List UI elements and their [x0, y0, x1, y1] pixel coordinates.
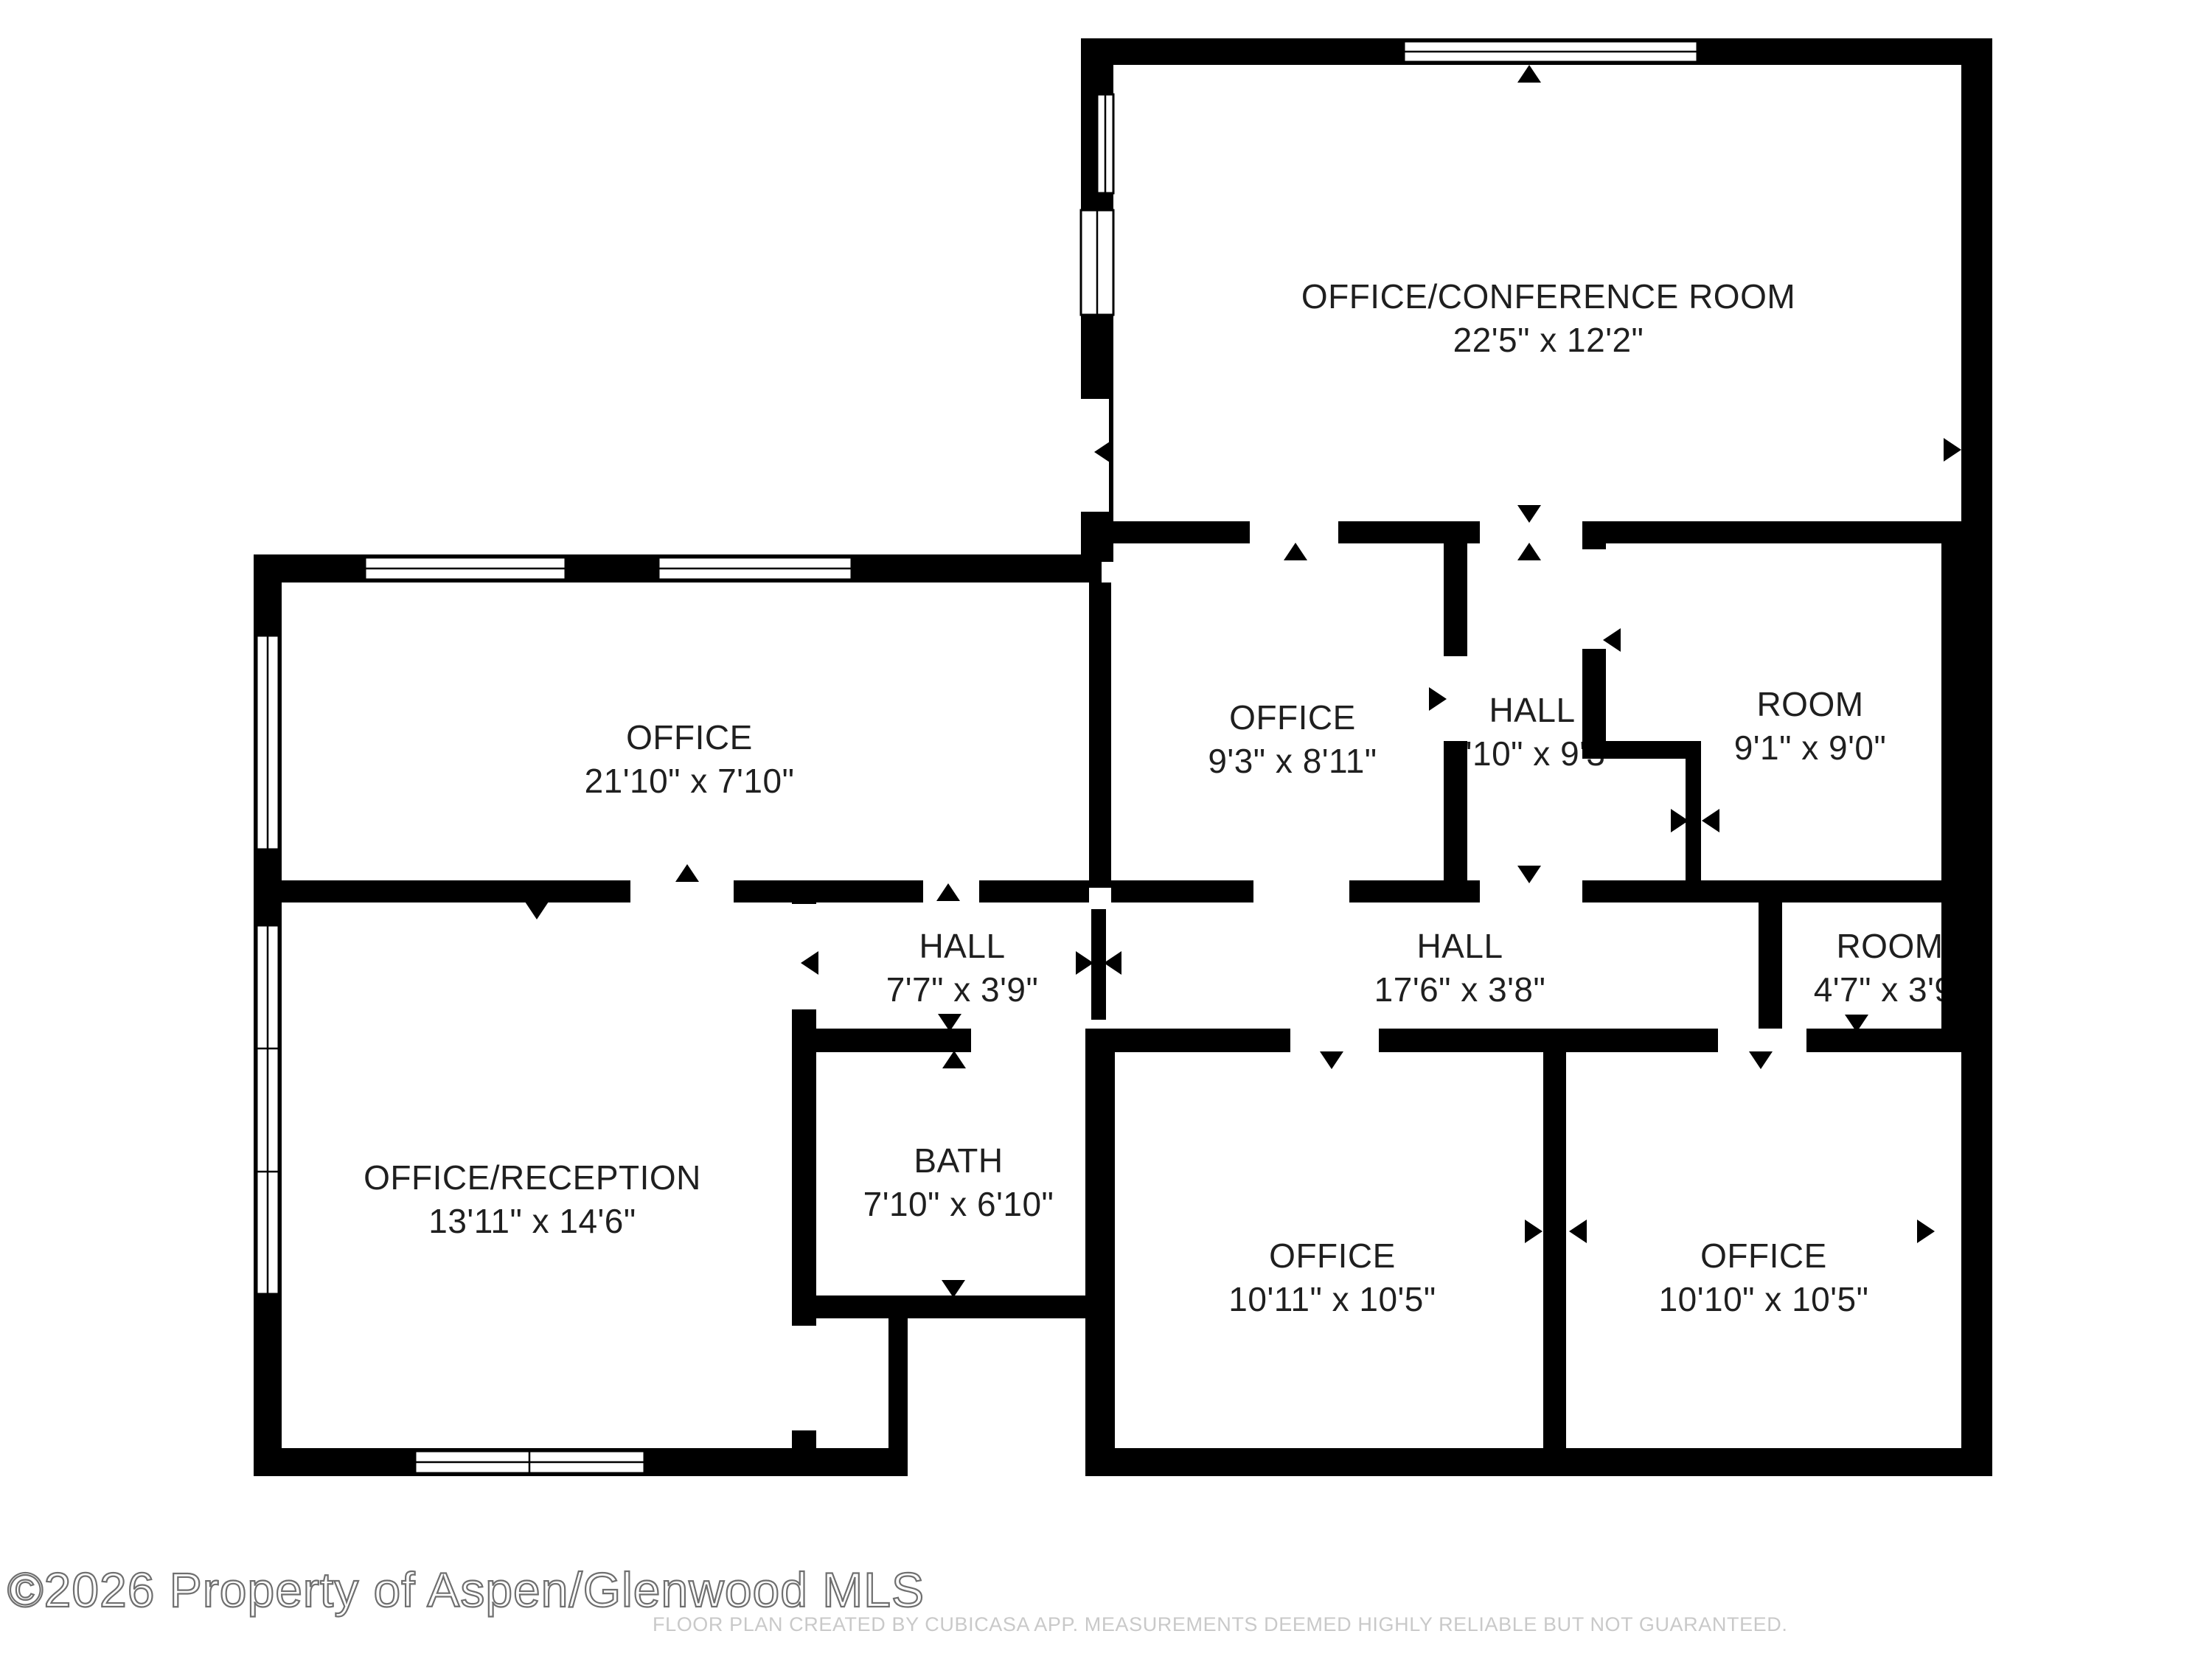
room-label-office-21-10: OFFICE 21'10" x 7'10" — [585, 716, 795, 803]
room-dimensions: 10'10" x 10'5" — [1659, 1278, 1869, 1321]
room-dimensions: 4'7" x 3'9" — [1814, 968, 1966, 1012]
room-label-room-9-1: ROOM 9'1" x 9'0" — [1734, 683, 1887, 770]
room-name: OFFICE — [1659, 1234, 1869, 1278]
room-name: ROOM — [1814, 925, 1966, 968]
room-label-hall-5-10: HALL 5'10" x 9'3" — [1447, 689, 1618, 776]
room-name: OFFICE — [1228, 1234, 1436, 1278]
room-dimensions: 17'6" x 3'8" — [1374, 968, 1546, 1012]
room-name: BATH — [863, 1139, 1054, 1183]
room-dimensions: 9'3" x 8'11" — [1208, 740, 1377, 783]
room-dimensions: 7'7" x 3'9" — [886, 968, 1039, 1012]
room-label-hall-7-7: HALL 7'7" x 3'9" — [886, 925, 1039, 1012]
room-dimensions: 22'5" x 12'2" — [1301, 319, 1795, 362]
room-label-office-9-3: OFFICE 9'3" x 8'11" — [1208, 696, 1377, 783]
mls-copyright-watermark: ©2026 Property of Aspen/Glenwood MLS — [7, 1562, 925, 1618]
room-name: OFFICE — [585, 716, 795, 759]
room-name: OFFICE/CONFERENCE ROOM — [1301, 275, 1795, 319]
room-dimensions: 10'11" x 10'5" — [1228, 1278, 1436, 1321]
cubicasa-disclaimer: FLOOR PLAN CREATED BY CUBICASA APP. MEAS… — [653, 1613, 1787, 1636]
room-name: ROOM — [1734, 683, 1887, 726]
room-name: HALL — [1374, 925, 1546, 968]
room-dimensions: 21'10" x 7'10" — [585, 759, 795, 803]
room-label-office-10-10: OFFICE 10'10" x 10'5" — [1659, 1234, 1869, 1321]
room-labels-layer: OFFICE/CONFERENCE ROOM 22'5" x 12'2" OFF… — [0, 0, 2212, 1659]
room-label-bath: BATH 7'10" x 6'10" — [863, 1139, 1054, 1226]
room-dimensions: 9'1" x 9'0" — [1734, 726, 1887, 770]
room-dimensions: 5'10" x 9'3" — [1447, 732, 1618, 776]
room-dimensions: 7'10" x 6'10" — [863, 1183, 1054, 1226]
room-label-hall-17-6: HALL 17'6" x 3'8" — [1374, 925, 1546, 1012]
room-label-office-reception: OFFICE/RECEPTION 13'11" x 14'6" — [364, 1156, 701, 1243]
floor-plan: OFFICE/CONFERENCE ROOM 22'5" x 12'2" OFF… — [0, 0, 2212, 1659]
room-label-office-conference: OFFICE/CONFERENCE ROOM 22'5" x 12'2" — [1301, 275, 1795, 362]
room-label-office-10-11: OFFICE 10'11" x 10'5" — [1228, 1234, 1436, 1321]
room-dimensions: 13'11" x 14'6" — [364, 1200, 701, 1243]
room-name: OFFICE/RECEPTION — [364, 1156, 701, 1200]
room-name: HALL — [886, 925, 1039, 968]
room-name: HALL — [1447, 689, 1618, 732]
room-label-room-4-7: ROOM 4'7" x 3'9" — [1814, 925, 1966, 1012]
room-name: OFFICE — [1208, 696, 1377, 740]
